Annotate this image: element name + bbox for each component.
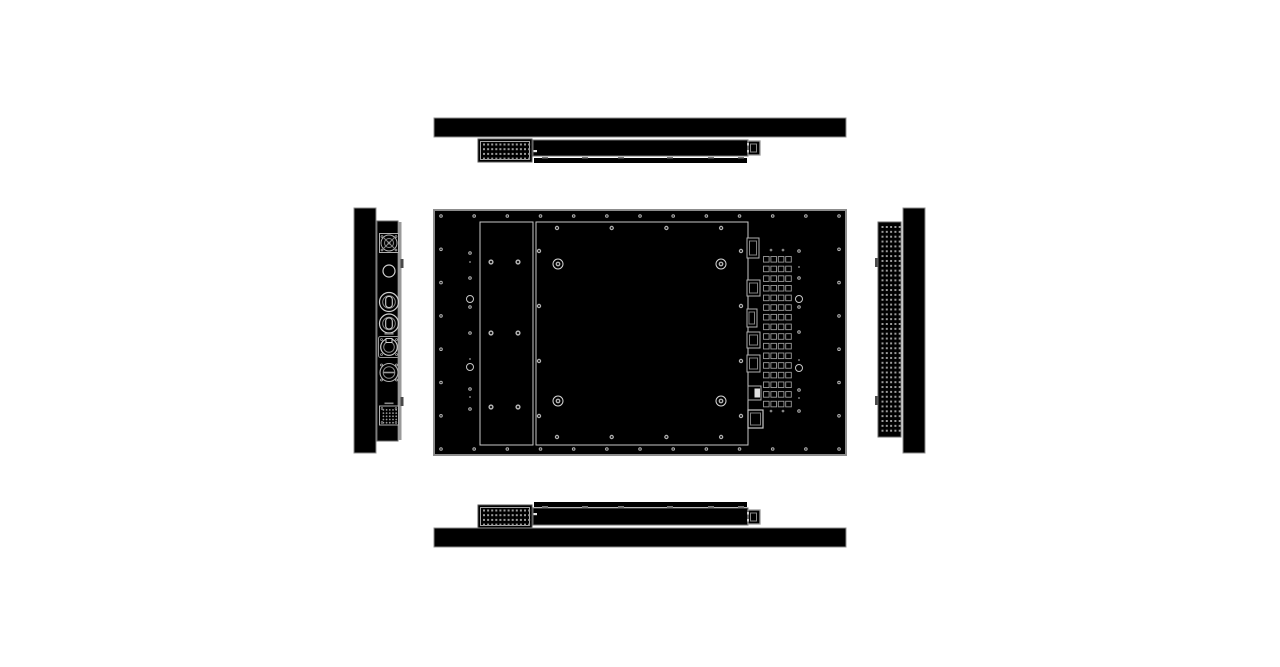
vent-hole xyxy=(516,514,518,516)
screw-center xyxy=(798,277,800,279)
screw-center xyxy=(440,382,442,384)
vent-hole xyxy=(890,381,892,383)
chassis-bar xyxy=(533,140,748,156)
front-bezel-bar xyxy=(434,118,846,137)
drawing-canvas xyxy=(0,0,1280,667)
terminal-pin xyxy=(747,519,749,522)
mesh-hole xyxy=(386,422,388,424)
vent-hole xyxy=(528,524,530,526)
vent-hole xyxy=(516,510,518,512)
screw-center xyxy=(395,236,396,237)
screw-center xyxy=(440,348,442,350)
screw-center xyxy=(798,250,800,252)
mesh-hole xyxy=(386,409,388,411)
port-tab xyxy=(755,389,761,398)
orthographic-technical-drawing xyxy=(0,0,1280,667)
vent-hole xyxy=(882,381,884,383)
seam-mark xyxy=(667,157,673,159)
vent-hole xyxy=(886,338,888,340)
screw-center xyxy=(469,332,471,334)
label-mark xyxy=(385,403,394,405)
vent-hole xyxy=(890,270,892,272)
bottom-view xyxy=(434,502,846,547)
vent-hole xyxy=(512,158,514,160)
vent-hole xyxy=(886,279,888,281)
pin-hole xyxy=(469,261,471,263)
vent-hole xyxy=(899,299,901,301)
vent-hole xyxy=(504,519,506,521)
screw-center xyxy=(665,436,667,438)
vent-hole xyxy=(890,338,892,340)
vent-hole xyxy=(882,425,884,427)
vent-hole xyxy=(899,405,901,407)
vent-hole xyxy=(520,144,522,146)
screw-center xyxy=(440,215,442,217)
vent-hole xyxy=(899,265,901,267)
vent-hole xyxy=(890,308,892,310)
vent-hole xyxy=(487,144,489,146)
seam-mark xyxy=(667,506,673,508)
vent-hole xyxy=(483,510,485,512)
vent-hole xyxy=(495,510,497,512)
seam-mark xyxy=(708,506,714,508)
screw-center xyxy=(639,215,641,217)
vent-hole xyxy=(890,245,892,247)
vent-hole xyxy=(899,352,901,354)
vent-hole xyxy=(524,148,526,150)
vent-hole xyxy=(890,357,892,359)
vent-hole xyxy=(495,148,497,150)
vent-hole xyxy=(499,148,501,150)
vent-hole xyxy=(899,362,901,364)
screw-center xyxy=(798,410,800,412)
vent-hole xyxy=(890,333,892,335)
screw-center xyxy=(395,249,396,250)
vent-hole xyxy=(894,270,896,272)
screw-center xyxy=(507,215,509,217)
vent-hole xyxy=(882,333,884,335)
vent-hole xyxy=(886,313,888,315)
vent-hole xyxy=(504,148,506,150)
vent-hole xyxy=(890,236,892,238)
vent-hole xyxy=(890,328,892,330)
vent-hole xyxy=(890,279,892,281)
vent-hole xyxy=(894,245,896,247)
vent-hole xyxy=(882,275,884,277)
vent-hole xyxy=(899,308,901,310)
vent-hole xyxy=(894,420,896,422)
vent-hole xyxy=(890,372,892,374)
vent-hole xyxy=(882,410,884,412)
vent-hole xyxy=(894,241,896,243)
vent-hole xyxy=(882,318,884,320)
vent-hole xyxy=(487,148,489,150)
screw-center xyxy=(381,249,382,250)
vent-hole xyxy=(495,144,497,146)
vent-hole xyxy=(894,255,896,257)
vent-hole xyxy=(528,158,530,160)
screw-center xyxy=(517,332,519,334)
vent-hole xyxy=(882,270,884,272)
vent-hole xyxy=(483,148,485,150)
mesh-hole xyxy=(389,412,391,414)
screw-center xyxy=(606,215,608,217)
fan-hub xyxy=(388,242,391,245)
vent-hole xyxy=(512,144,514,146)
screw-center xyxy=(396,379,397,380)
vent-hole xyxy=(899,328,901,330)
vent-hole xyxy=(528,519,530,521)
vent-hole xyxy=(894,231,896,233)
screw-center xyxy=(440,282,442,284)
vent-hole xyxy=(886,352,888,354)
terminal-connector xyxy=(748,510,760,524)
vent-hole xyxy=(894,342,896,344)
vent-hole xyxy=(899,241,901,243)
screw-center xyxy=(740,415,742,417)
screw-center xyxy=(740,305,742,307)
vent-hole xyxy=(899,284,901,286)
vent-hole xyxy=(495,519,497,521)
vent-hole xyxy=(508,510,510,512)
pin-hole xyxy=(798,266,800,268)
vent-hole xyxy=(495,524,497,526)
vent-hole xyxy=(882,226,884,228)
vent-hole xyxy=(894,386,896,388)
mesh-hole xyxy=(392,419,394,421)
vent-hole xyxy=(524,158,526,160)
pin-hole xyxy=(469,396,471,398)
vent-hole xyxy=(491,519,493,521)
screw-center xyxy=(381,379,382,380)
vent-hole xyxy=(524,524,526,526)
vent-hole xyxy=(508,158,510,160)
vent-hole xyxy=(894,284,896,286)
vent-hole xyxy=(886,381,888,383)
vent-hole xyxy=(886,333,888,335)
vent-hole xyxy=(890,405,892,407)
screw-center xyxy=(538,305,540,307)
vent-hole xyxy=(882,279,884,281)
vent-hole xyxy=(899,250,901,252)
vent-hole xyxy=(899,323,901,325)
vent-hole xyxy=(894,328,896,330)
vent-hole xyxy=(528,144,530,146)
vent-hole xyxy=(886,405,888,407)
vent-hole xyxy=(894,304,896,306)
screw-center xyxy=(538,360,540,362)
vent-hole xyxy=(504,514,506,516)
vent-hole xyxy=(886,284,888,286)
vent-hole xyxy=(899,313,901,315)
screw-center xyxy=(469,388,471,390)
vent-hole xyxy=(894,381,896,383)
screw-center xyxy=(770,410,771,411)
screw-center xyxy=(740,250,742,252)
vent-hole xyxy=(520,514,522,516)
vent-hole xyxy=(899,342,901,344)
vent-hole xyxy=(882,352,884,354)
seam-mark xyxy=(534,513,538,515)
vent-hole xyxy=(508,153,510,155)
vent-hole xyxy=(894,347,896,349)
vent-hole xyxy=(899,231,901,233)
vent-hole xyxy=(886,236,888,238)
screw-center xyxy=(473,215,475,217)
vent-hole xyxy=(487,519,489,521)
screw-center xyxy=(720,227,722,229)
mesh-hole xyxy=(389,409,391,411)
screw-center xyxy=(838,282,840,284)
vent-hole xyxy=(890,386,892,388)
vent-hole xyxy=(894,318,896,320)
vent-hole xyxy=(886,289,888,291)
vent-hole xyxy=(882,430,884,432)
seam-mark xyxy=(542,506,548,508)
screw-center xyxy=(396,339,397,340)
screw-center xyxy=(772,215,774,217)
vent-hole xyxy=(524,519,526,521)
vent-hole xyxy=(882,347,884,349)
vent-hole xyxy=(886,372,888,374)
vent-hole xyxy=(894,265,896,267)
mesh-hole xyxy=(386,415,388,417)
vent-hole xyxy=(886,386,888,388)
mesh-hole xyxy=(392,415,394,417)
vent-hole xyxy=(890,425,892,427)
pin-hole xyxy=(798,397,800,399)
vent-hole xyxy=(495,158,497,160)
vent-hole xyxy=(890,352,892,354)
vent-hole xyxy=(483,519,485,521)
vent-hole xyxy=(491,510,493,512)
seam-mark xyxy=(708,157,714,159)
vent-hole xyxy=(894,333,896,335)
vent-hole xyxy=(890,367,892,369)
vent-hole xyxy=(899,410,901,412)
screw-center xyxy=(490,406,492,408)
vent-hole xyxy=(495,514,497,516)
vent-hole xyxy=(886,318,888,320)
vent-hole xyxy=(886,425,888,427)
vent-hole xyxy=(894,250,896,252)
vent-hole xyxy=(894,313,896,315)
vent-hole xyxy=(508,144,510,146)
screw-center xyxy=(798,389,800,391)
screw-center xyxy=(720,400,722,402)
terminal-connector xyxy=(748,141,760,155)
seam-mark xyxy=(618,157,624,159)
vent-hole xyxy=(899,279,901,281)
vent-hole xyxy=(899,245,901,247)
vent-hole xyxy=(894,357,896,359)
screw-center xyxy=(469,277,471,279)
vent-hole xyxy=(899,386,901,388)
screw-center xyxy=(381,339,382,340)
rear-panel xyxy=(434,210,846,455)
vent-hole xyxy=(899,376,901,378)
vent-hole xyxy=(487,153,489,155)
vent-hole xyxy=(890,347,892,349)
vent-hole xyxy=(886,304,888,306)
vent-hole xyxy=(499,524,501,526)
vent-hole xyxy=(899,357,901,359)
vent-hole xyxy=(487,524,489,526)
screw-center xyxy=(507,448,509,450)
vent-hole xyxy=(890,420,892,422)
screw-center xyxy=(556,436,558,438)
screw-center xyxy=(770,249,771,250)
seam-mark xyxy=(738,506,744,508)
vent-hole xyxy=(882,415,884,417)
vent-hole xyxy=(524,153,526,155)
vent-hole xyxy=(882,401,884,403)
screw-center xyxy=(440,415,442,417)
vent-hole xyxy=(882,304,884,306)
vent-hole xyxy=(886,250,888,252)
screw-center xyxy=(739,448,741,450)
vent-hole xyxy=(882,265,884,267)
vent-hole xyxy=(882,338,884,340)
vent-hole xyxy=(495,153,497,155)
vent-hole xyxy=(508,519,510,521)
vent-hole xyxy=(882,396,884,398)
vent-hole xyxy=(890,299,892,301)
vent-hole xyxy=(886,415,888,417)
screw-center xyxy=(469,306,471,308)
vent-hole xyxy=(504,144,506,146)
vent-hole xyxy=(890,265,892,267)
seam-mark xyxy=(534,150,538,152)
screw-center xyxy=(740,360,742,362)
vent-hole xyxy=(894,396,896,398)
vent-hole xyxy=(894,226,896,228)
screw-center xyxy=(469,252,471,254)
screw-center xyxy=(395,422,396,423)
vent-hole xyxy=(487,158,489,160)
seam-mark xyxy=(542,157,548,159)
bezel-edge-bar xyxy=(903,208,925,453)
screw-center xyxy=(838,382,840,384)
vent-hole xyxy=(886,265,888,267)
screw-center xyxy=(573,448,575,450)
vent-hole xyxy=(886,294,888,296)
vent-hole xyxy=(882,299,884,301)
vent-hole xyxy=(894,376,896,378)
screw-center xyxy=(611,436,613,438)
vent-hole xyxy=(882,342,884,344)
vent-hole xyxy=(890,304,892,306)
vent-hole xyxy=(512,510,514,512)
vent-hole xyxy=(504,510,506,512)
vent-hole xyxy=(894,405,896,407)
vent-hole xyxy=(499,519,501,521)
vent-hole xyxy=(520,148,522,150)
vent-hole xyxy=(899,420,901,422)
vent-hole xyxy=(890,396,892,398)
vent-hole xyxy=(882,386,884,388)
vent-hole xyxy=(899,318,901,320)
vent-hole xyxy=(499,158,501,160)
mesh-hole xyxy=(389,422,391,424)
screw-center xyxy=(540,448,542,450)
vent-hole xyxy=(890,231,892,233)
vent-hole xyxy=(516,158,518,160)
vent-hole xyxy=(899,226,901,228)
vent-hole xyxy=(524,510,526,512)
vent-hole xyxy=(890,430,892,432)
mesh-hole xyxy=(389,415,391,417)
vent-hole xyxy=(886,308,888,310)
vent-hole xyxy=(890,260,892,262)
vent-hole xyxy=(499,510,501,512)
vent-hole xyxy=(899,396,901,398)
vent-hole xyxy=(520,158,522,160)
vent-hole xyxy=(894,289,896,291)
vent-hole xyxy=(491,144,493,146)
vent-strip-panel xyxy=(878,222,901,437)
mounting-tab xyxy=(401,397,404,406)
vent-hole xyxy=(899,333,901,335)
screw-center xyxy=(706,448,708,450)
mesh-hole xyxy=(383,412,385,414)
right-side-view xyxy=(875,208,925,453)
pin-hole xyxy=(469,358,471,360)
screw-center xyxy=(672,215,674,217)
screw-center xyxy=(381,422,382,423)
vent-hole xyxy=(890,289,892,291)
mounting-tab xyxy=(401,259,404,268)
vent-hole xyxy=(899,236,901,238)
vent-hole xyxy=(894,323,896,325)
vent-hole xyxy=(508,514,510,516)
xlr-latch xyxy=(386,339,392,343)
vent-hole xyxy=(886,430,888,432)
vent-hole xyxy=(491,148,493,150)
screw-center xyxy=(517,406,519,408)
vent-hole xyxy=(890,376,892,378)
vent-hole xyxy=(894,391,896,393)
screw-center xyxy=(782,249,783,250)
terminal-pin xyxy=(747,150,749,153)
vent-hole xyxy=(894,352,896,354)
vent-hole xyxy=(886,275,888,277)
mesh-hole xyxy=(395,412,397,414)
vent-hole xyxy=(890,275,892,277)
vent-hole xyxy=(894,236,896,238)
vent-hole xyxy=(899,270,901,272)
vent-hole xyxy=(512,148,514,150)
vent-hole xyxy=(894,372,896,374)
screw-center xyxy=(490,332,492,334)
vent-hole xyxy=(886,347,888,349)
screw-center xyxy=(381,354,382,355)
chassis-bar xyxy=(533,508,748,525)
mesh-hole xyxy=(389,419,391,421)
vent-hole xyxy=(882,289,884,291)
mesh-hole xyxy=(392,412,394,414)
vent-hole xyxy=(886,231,888,233)
vent-hole xyxy=(512,514,514,516)
vent-hole xyxy=(890,318,892,320)
vent-hole xyxy=(899,401,901,403)
vent-hole xyxy=(894,430,896,432)
bezel-edge-bar xyxy=(354,208,376,453)
port-connector xyxy=(747,280,760,296)
mesh-hole xyxy=(386,412,388,414)
vent-hole xyxy=(886,391,888,393)
vent-hole xyxy=(890,294,892,296)
